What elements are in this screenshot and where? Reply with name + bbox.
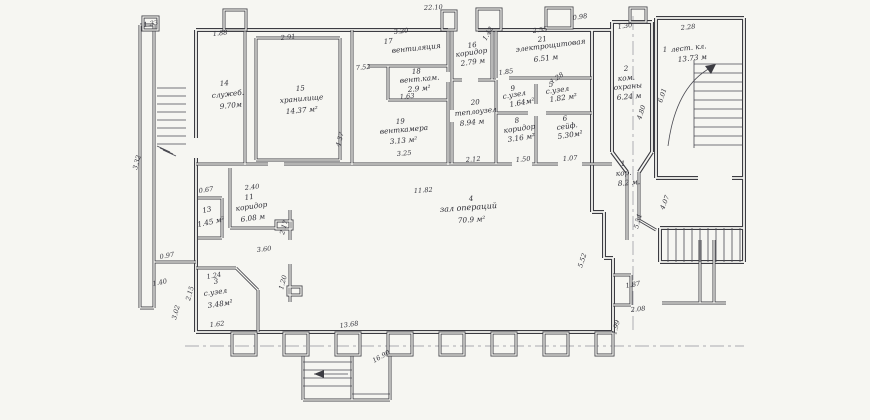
- room-15-number: 15: [295, 83, 305, 93]
- staircase-treads: [694, 60, 742, 148]
- staircase-arrow-icon: [705, 64, 716, 74]
- room-14-area: 9.70м: [219, 100, 242, 111]
- room-1-kor-area: 8.2 м.: [617, 177, 640, 188]
- room-15-name: хранилище: [279, 92, 323, 105]
- room-19-area: 3.13 м²: [389, 135, 417, 146]
- floor-plan-drawing: 14 служеб. 9.70м 15 хранилище 14.37 м² 1…: [0, 0, 870, 420]
- dim-752: 7.52: [355, 63, 370, 72]
- room-20-name: теплоузел: [454, 105, 497, 118]
- entrance-arrow-icon: [314, 370, 324, 378]
- room-20-area: 8.94 м: [459, 116, 484, 128]
- dim-r14-width: 1.88: [212, 28, 227, 37]
- room-2-number: 2: [622, 64, 629, 73]
- dim-150: 1.50: [515, 155, 530, 164]
- room-4-name: зал операций: [440, 201, 498, 214]
- room-14-number: 14: [219, 78, 229, 88]
- room-3-area: 3.48м²: [207, 298, 233, 310]
- room-4-area: 70.9 м²: [458, 214, 486, 225]
- dim-208: 2.08: [629, 304, 645, 314]
- dim-1690: 16.90: [371, 348, 391, 364]
- room-1-kor-name: кор.: [615, 168, 631, 178]
- room-1-kor-number: 1: [620, 159, 625, 168]
- floor-plan-sheet: 14 служеб. 9.70м 15 хранилище 14.37 м² 1…: [0, 0, 870, 420]
- room-3-name: с.узел: [203, 286, 228, 298]
- dim-215: 2.15: [184, 285, 196, 302]
- dim-r2-width: 1.30: [617, 21, 633, 31]
- dim-097: 0.97: [159, 250, 176, 261]
- entrance-steps-left-hatch: [157, 88, 186, 156]
- dim-r15-width: 2.91: [279, 32, 295, 42]
- room-17-number: 17: [383, 36, 393, 46]
- staircase-arc: [668, 66, 714, 146]
- dim-140: 1.40: [152, 277, 168, 288]
- room-14-name: служеб.: [211, 88, 244, 100]
- room-4-number: 4: [468, 194, 474, 203]
- dim-1368: 13.68: [339, 319, 359, 330]
- room-21-area: 6.51 м: [533, 52, 559, 64]
- dim-302: 3.02: [170, 304, 182, 320]
- dim-163: 1.63: [399, 92, 414, 101]
- dim-stair-height: 6.01: [656, 87, 668, 103]
- dim-162: 1.62: [209, 319, 224, 328]
- room-19-name: венткамера: [379, 123, 428, 136]
- dim-stair-width: 2.28: [679, 22, 695, 32]
- room-21-name: электрощитовая: [515, 36, 586, 54]
- se-exterior-steps: [668, 228, 740, 262]
- dim-098: 0.98: [572, 12, 588, 22]
- entrance-steps-bottom: [303, 362, 390, 394]
- dim-360: 3.60: [256, 244, 271, 253]
- dim-124: 1.24: [206, 271, 222, 281]
- dim-187: 1.87: [625, 279, 642, 290]
- dim-r2-height: 4.80: [635, 104, 647, 121]
- room-17-name: вентиляция: [391, 41, 441, 55]
- room-1-stair-area: 13.73 м: [677, 52, 707, 64]
- dim-128: 1.28: [549, 71, 566, 86]
- dim-pier-left: 1.33: [143, 19, 159, 29]
- dim-067: 0.67: [198, 185, 214, 195]
- dim-185: 1.85: [498, 67, 514, 77]
- room-11-number: 11: [244, 192, 254, 202]
- dim-212: 2.12: [464, 155, 480, 164]
- room-1-stair-number: 1: [662, 45, 667, 54]
- dim-top-overall: 22.10: [423, 3, 443, 12]
- room-13-number: 13: [202, 204, 213, 215]
- room-2-area: 6.24 м: [616, 91, 641, 102]
- dim-552: 5.52: [576, 252, 588, 268]
- room-11-area: 6.08 м: [240, 212, 266, 224]
- dim-107: 1.07: [562, 154, 578, 163]
- dim-407: 4.07: [658, 193, 672, 211]
- dim-r17-width: 3.20: [393, 26, 408, 35]
- dim-240: 2.40: [243, 182, 259, 192]
- dim-554: 5.54: [632, 213, 644, 229]
- dim-vault-height: 4.37: [334, 130, 346, 148]
- room-15-area: 14.37 м²: [285, 104, 318, 116]
- dim-325: 3.25: [396, 149, 411, 158]
- dim-hall-width: 11.82: [414, 186, 433, 195]
